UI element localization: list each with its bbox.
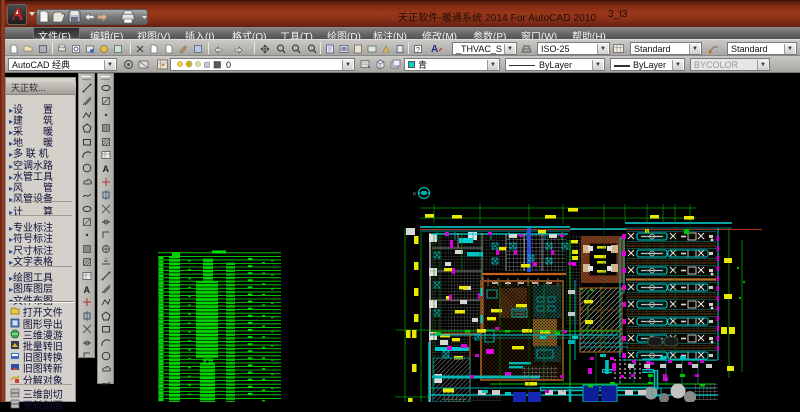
svg-text:A: A — [103, 164, 110, 174]
svg-text:A: A — [431, 44, 438, 55]
svg-text:A: A — [84, 285, 91, 295]
svg-text:?: ? — [416, 47, 420, 54]
